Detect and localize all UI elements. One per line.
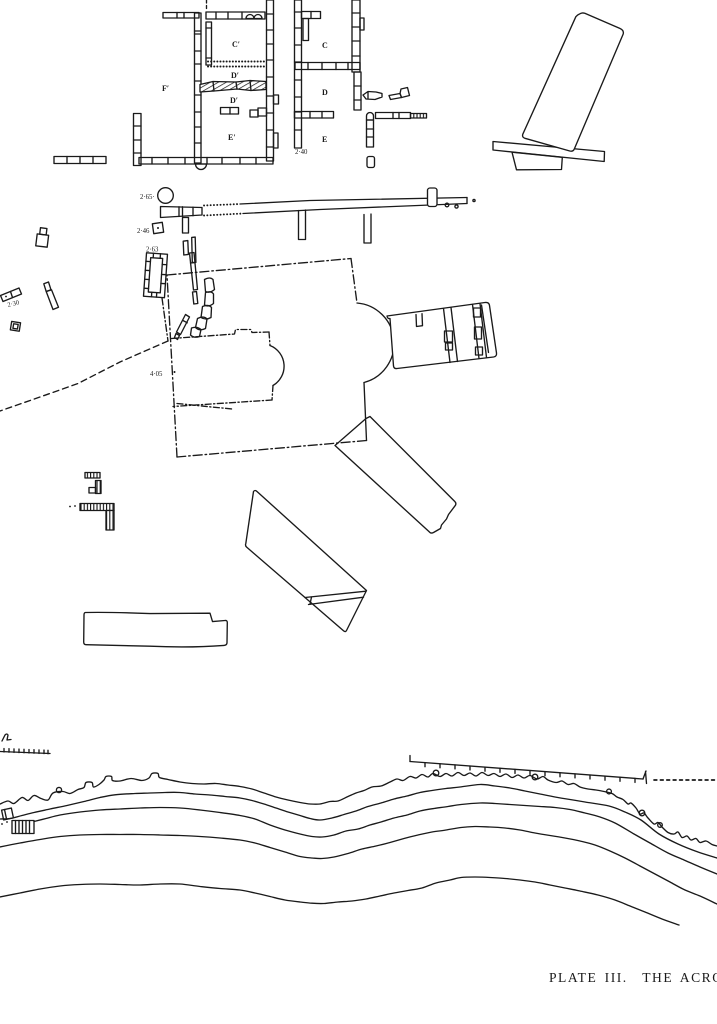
svg-text:E′: E′ [228, 133, 236, 142]
svg-text:F′: F′ [162, 84, 169, 93]
svg-text:C′: C′ [232, 40, 240, 49]
svg-text:D′: D′ [231, 71, 239, 80]
svg-text:C: C [322, 41, 328, 50]
svg-text:2·65·: 2·65· [140, 194, 155, 201]
svg-text:2·40: 2·40 [295, 149, 308, 156]
svg-text:4·05: 4·05 [150, 371, 163, 378]
svg-text:2·46: 2·46 [137, 228, 150, 235]
svg-text:PLATE III. THE ACROPOLIS: PLATE III. THE ACROPOLIS [549, 970, 717, 985]
svg-text:E: E [322, 135, 327, 144]
svg-text:D′: D′ [230, 96, 238, 105]
svg-text:D: D [322, 88, 328, 97]
